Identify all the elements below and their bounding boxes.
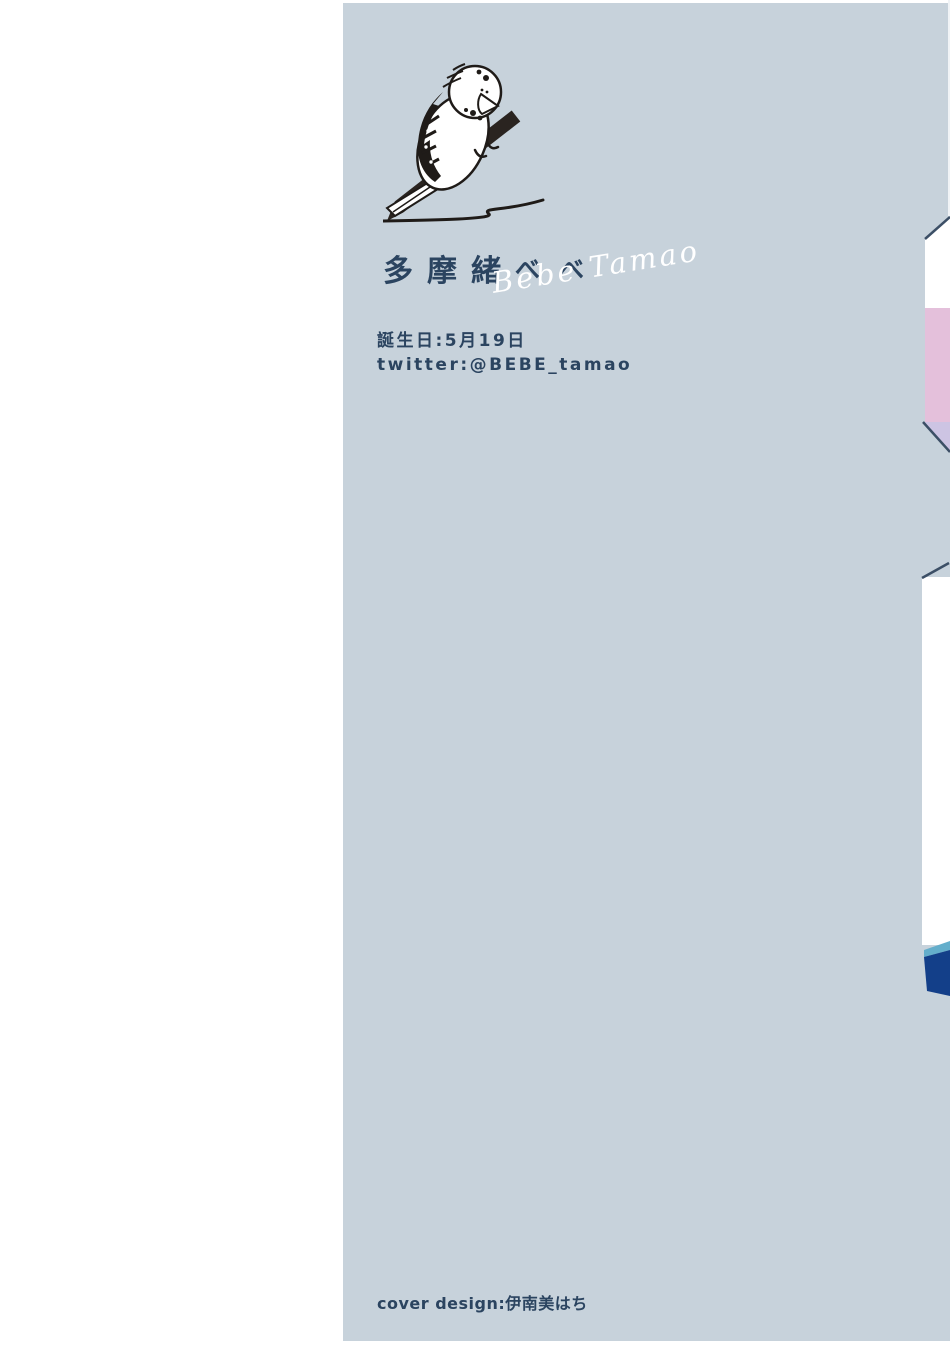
budgerigar-pencil-illustration	[383, 54, 558, 234]
cover-design-credit: cover design:伊南美はち	[377, 1290, 588, 1314]
author-info: 誕生日:5月19日 twitter:@BEBE_tamao	[377, 329, 632, 377]
cover-edge-white-sliver	[922, 577, 950, 945]
budgerigar-icon	[387, 64, 503, 216]
birthday-text: 誕生日:5月19日	[377, 329, 632, 353]
budgerigar-pencil-svg	[383, 54, 558, 234]
cover-edge-sliver-strip	[918, 0, 950, 1347]
cover-edge-navy-sliver	[924, 950, 950, 996]
twitter-handle-text: twitter:@BEBE_tamao	[377, 353, 632, 377]
cover-edge-white-notch	[925, 217, 950, 308]
cover-edge-diagonal-line-lower	[922, 563, 949, 578]
cover-edge-pink-sliver	[925, 308, 950, 422]
